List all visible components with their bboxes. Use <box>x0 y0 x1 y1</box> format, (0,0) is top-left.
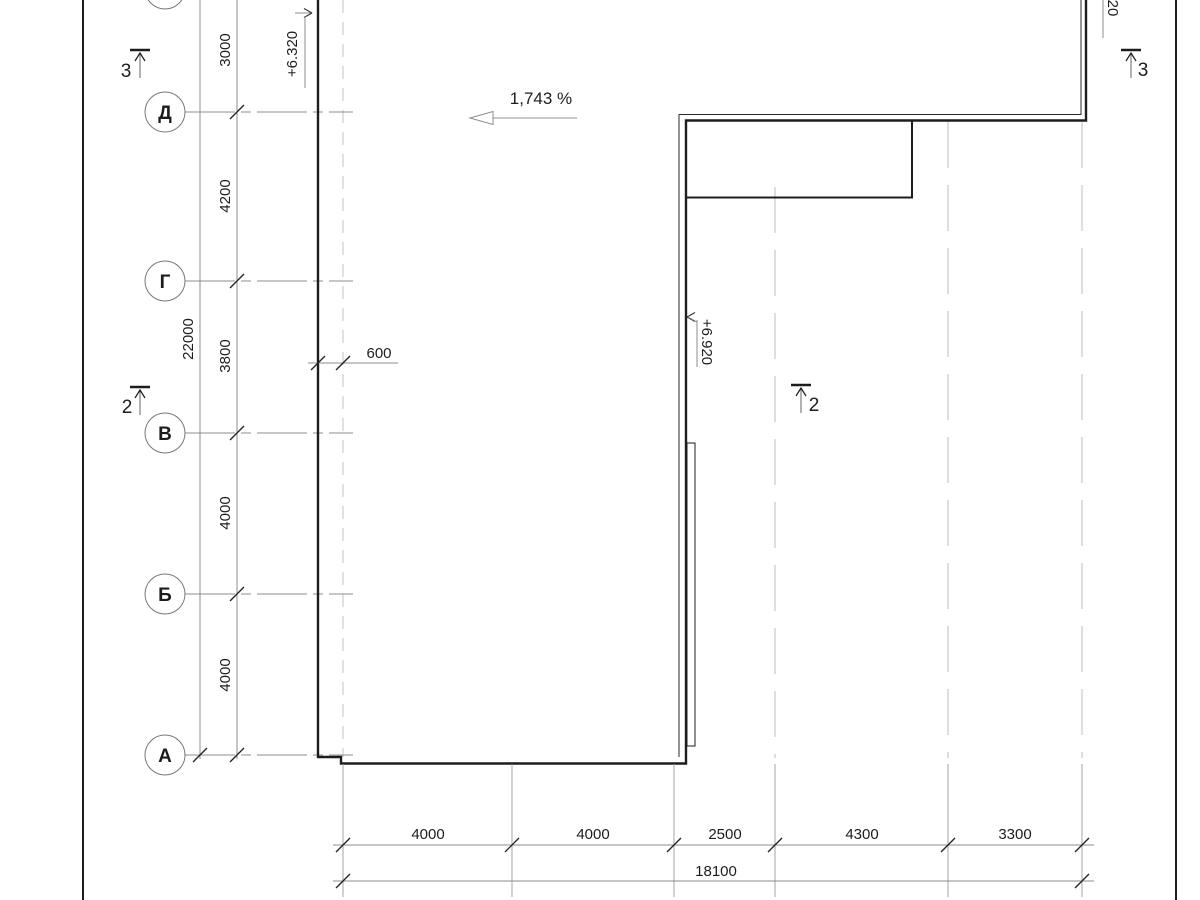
arrow-head-icon <box>304 9 312 14</box>
section-number: 3 <box>1138 60 1149 81</box>
arrow-head-icon <box>687 313 695 318</box>
plan-drawing: 3000 4200 3800 4000 4000 22000 Д Г В Б А <box>0 0 1200 900</box>
axis-row-lines <box>185 112 353 755</box>
section-arrow-icon <box>1126 53 1131 61</box>
parapet-inner-line <box>679 0 1081 757</box>
dim-label-b4000-b: 4000 <box>576 826 609 843</box>
section-marker-3-right: 3 <box>1121 50 1148 81</box>
dim-label-4000-a: 4000 <box>217 496 234 529</box>
dim-label-b4300: 4300 <box>845 826 878 843</box>
section-number: 3 <box>121 61 132 82</box>
dim-label-b2500: 2500 <box>708 826 741 843</box>
elevation-label-left: +6.320 <box>284 31 301 77</box>
dim-label-600: 600 <box>366 345 391 362</box>
dim-label-b3300: 3300 <box>998 826 1031 843</box>
dim-label-22000: 22000 <box>180 318 197 360</box>
dim-label-b4000-a: 4000 <box>411 826 444 843</box>
dim-label-3000: 3000 <box>217 33 234 66</box>
section-arrow-icon <box>135 390 140 398</box>
roof-step-rectangle <box>686 121 912 198</box>
elevation-mark-top-right: 20 <box>1103 0 1121 38</box>
axis-label-d: Д <box>158 103 172 124</box>
section-arrow-icon <box>801 388 806 396</box>
section-arrow-icon <box>135 53 140 61</box>
section-arrow-icon <box>140 53 145 61</box>
axis-label-g: Г <box>160 272 171 293</box>
leader-line <box>688 317 697 322</box>
axis-label-a: А <box>158 746 172 767</box>
dim-label-18100: 18100 <box>695 863 737 880</box>
section-number: 2 <box>122 397 133 418</box>
section-number: 2 <box>809 395 820 416</box>
elevation-mark-left: +6.320 <box>284 9 312 89</box>
dim-label-4200: 4200 <box>217 179 234 212</box>
elevation-mark-inner: +6.920 <box>687 313 715 368</box>
dim-label-4000-b: 4000 <box>217 658 234 691</box>
slope-arrow-head-icon <box>470 112 493 125</box>
elevation-label-inner: +6.920 <box>698 319 715 365</box>
section-arrow-icon <box>796 388 801 396</box>
wall-protrusion <box>687 443 695 746</box>
section-marker-2-inner: 2 <box>791 385 819 416</box>
dim-label-3800: 3800 <box>217 339 234 372</box>
drawing-sheet: 3000 4200 3800 4000 4000 22000 Д Г В Б А <box>0 0 1200 900</box>
section-marker-3-left: 3 <box>121 50 150 82</box>
slope-label: 1,743 % <box>510 89 572 108</box>
section-arrow-icon <box>140 390 145 398</box>
section-arrow-icon <box>1131 53 1136 61</box>
elevation-label-partial: 20 <box>1104 0 1121 16</box>
axis-bubbles: Д Г В Б А <box>145 0 185 775</box>
section-marker-2-left: 2 <box>122 387 150 418</box>
axis-label-b: Б <box>158 585 172 606</box>
axis-bubble-clipped <box>145 0 185 9</box>
axis-label-v: В <box>158 424 172 445</box>
